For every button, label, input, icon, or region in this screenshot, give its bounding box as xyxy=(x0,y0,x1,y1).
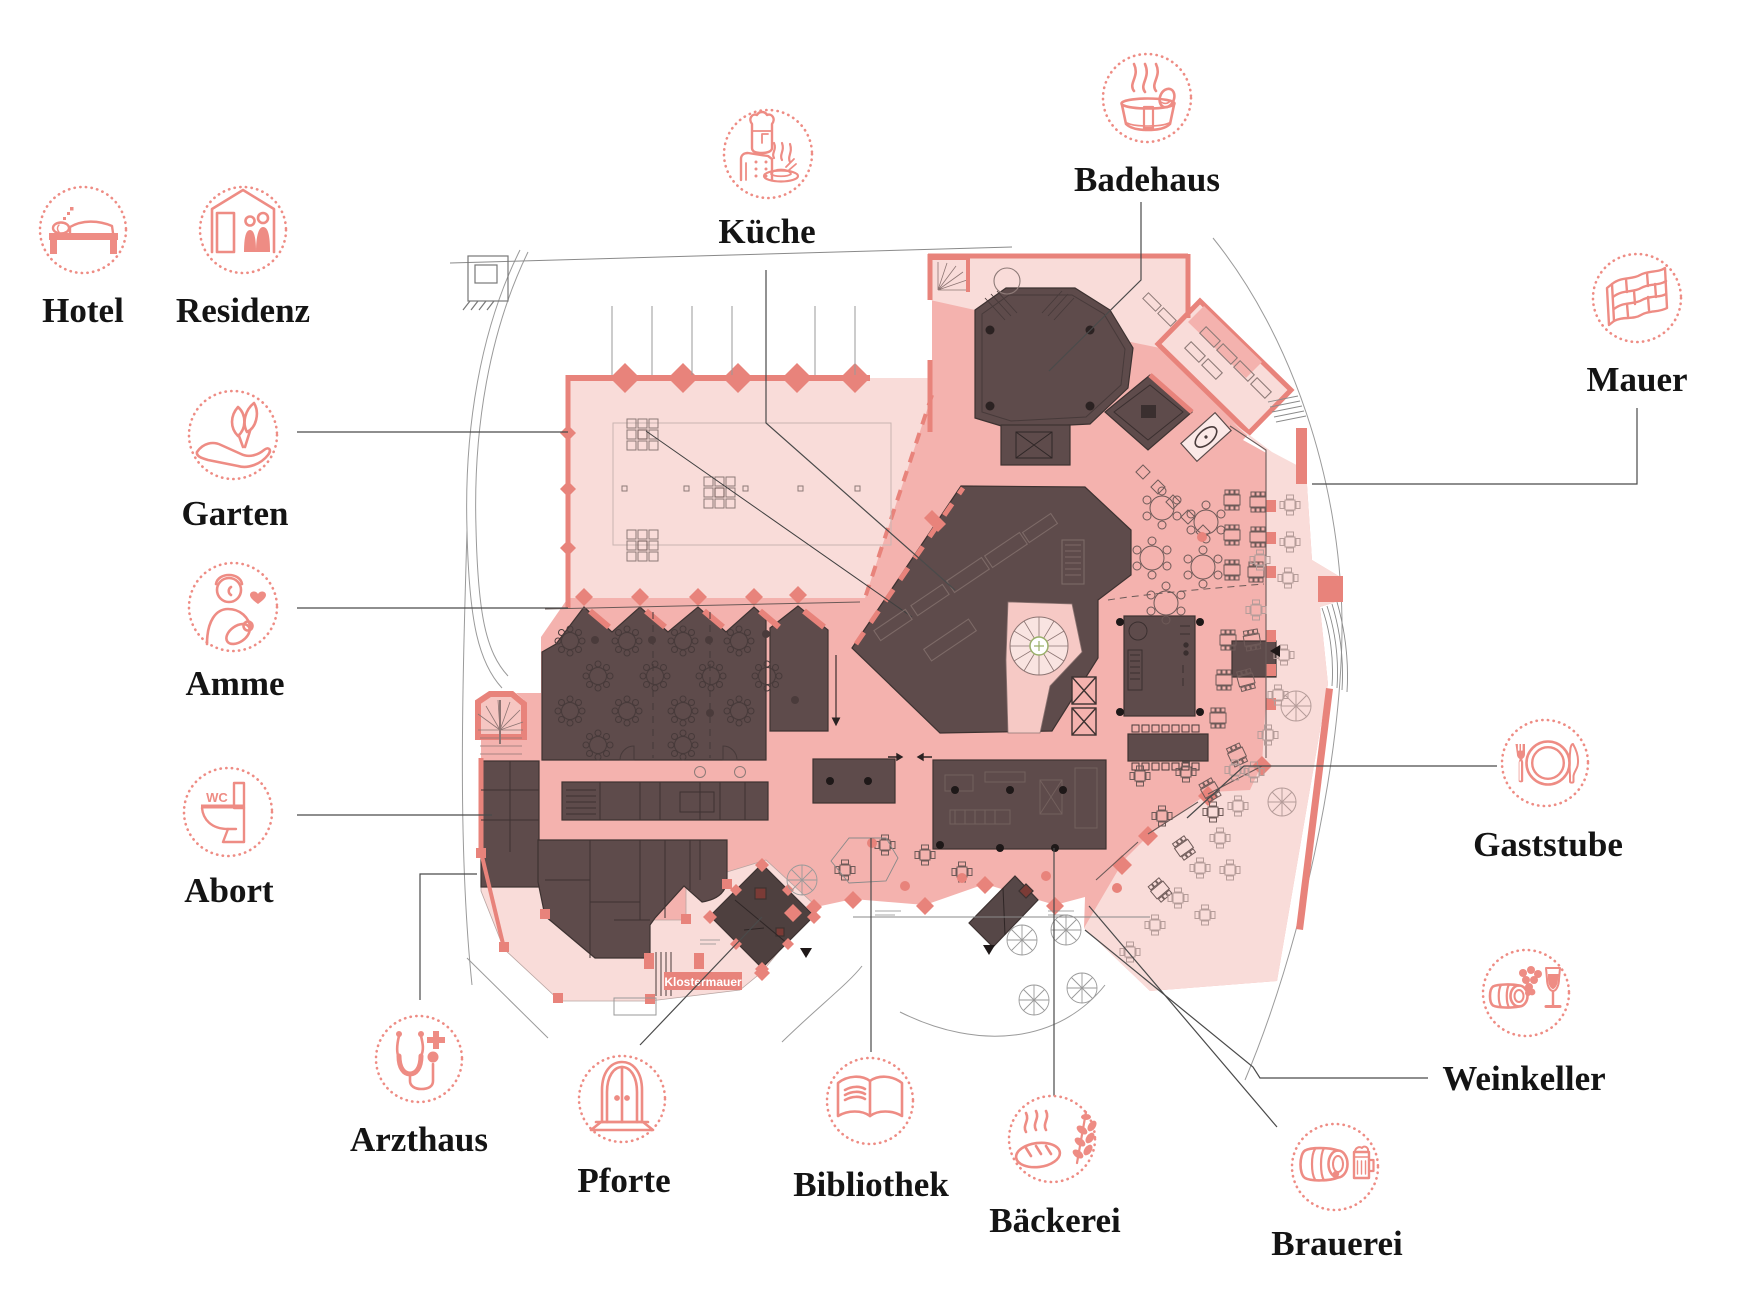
svg-text:Mauer: Mauer xyxy=(1586,360,1687,399)
svg-text:Weinkeller: Weinkeller xyxy=(1442,1059,1605,1098)
svg-text:Residenz: Residenz xyxy=(176,291,310,330)
svg-text:Badehaus: Badehaus xyxy=(1074,160,1220,199)
svg-text:Abort: Abort xyxy=(184,871,274,910)
svg-text:Garten: Garten xyxy=(182,494,289,533)
svg-text:Küche: Küche xyxy=(718,212,815,251)
svg-text:Bäckerei: Bäckerei xyxy=(989,1201,1121,1240)
svg-text:Hotel: Hotel xyxy=(42,291,124,330)
svg-text:Bibliothek: Bibliothek xyxy=(793,1165,949,1204)
svg-text:Brauerei: Brauerei xyxy=(1271,1224,1403,1263)
svg-text:Gaststube: Gaststube xyxy=(1473,825,1623,864)
svg-text:Pforte: Pforte xyxy=(577,1161,670,1200)
svg-text:WC: WC xyxy=(206,790,228,805)
svg-text:Amme: Amme xyxy=(185,664,284,703)
svg-text:Arzthaus: Arzthaus xyxy=(350,1120,488,1159)
svg-text:Klostermauer: Klostermauer xyxy=(664,975,742,989)
